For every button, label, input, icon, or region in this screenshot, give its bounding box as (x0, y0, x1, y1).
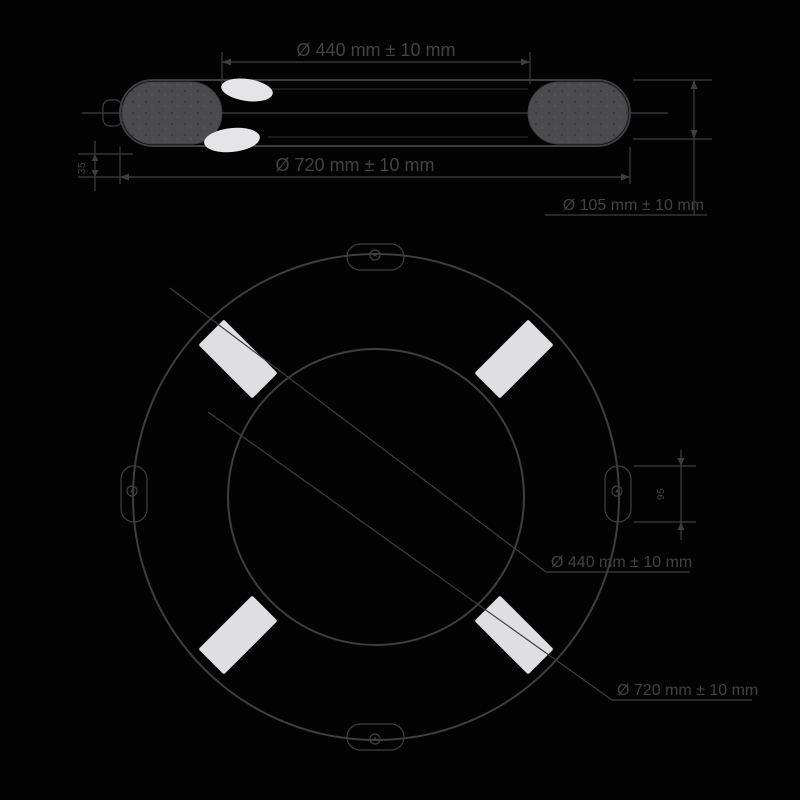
arrowhead (621, 174, 630, 181)
reflective-tape-se (474, 595, 553, 674)
leader-line (170, 288, 546, 572)
dimension-ear-width: 95 (634, 450, 696, 540)
dimension-label: Ø 105 mm ± 10 mm (563, 197, 704, 214)
dimension-side-outer-diameter: Ø 720 mm ± 10 mm (120, 147, 630, 184)
ear-hole-center (374, 254, 377, 257)
ear-hole-center (131, 490, 134, 493)
dimension-label: Ø 440 mm ± 10 mm (551, 554, 692, 571)
ear-hole-center (374, 738, 377, 741)
reflective-tape-nw (198, 319, 277, 398)
dimension-band-width: 35 (77, 141, 133, 191)
arrowhead (678, 458, 685, 466)
dimension-side-inner-diameter: Ø 440 mm ± 10 mm (222, 40, 530, 84)
lifebuoy-technical-drawing: Ø 440 mm ± 10 mm Ø 720 mm ± 10 mm Ø 105 … (0, 0, 800, 800)
dimension-label: Ø 720 mm ± 10 mm (276, 155, 435, 175)
ear-tab (347, 244, 404, 270)
ear-south (347, 724, 404, 750)
drawing-page: Ø 440 mm ± 10 mm Ø 720 mm ± 10 mm Ø 105 … (0, 0, 800, 800)
inner-circle (228, 349, 524, 645)
right-end-cap (528, 82, 628, 144)
ear-hole-center (616, 490, 619, 493)
top-view: Ø 440 mm ± 10 mm Ø 720 mm ± 10 mm 95 (121, 244, 758, 750)
reflective-tape-ne (474, 319, 553, 398)
dimension-label: 95 (656, 488, 667, 500)
arrowhead (678, 522, 685, 530)
arrowhead (691, 80, 698, 89)
dimension-label: Ø 720 mm ± 10 mm (617, 682, 758, 699)
left-end-cap (122, 82, 222, 144)
reflective-tape-sw (198, 595, 277, 674)
ear-north (347, 244, 404, 270)
dimension-label: 35 (77, 162, 88, 174)
dimension-label: Ø 440 mm ± 10 mm (297, 40, 456, 60)
arrowhead (92, 170, 99, 177)
ear-tab (347, 724, 404, 750)
arrowhead (222, 59, 231, 66)
side-view: Ø 440 mm ± 10 mm Ø 720 mm ± 10 mm Ø 105 … (77, 40, 712, 215)
arrowhead (521, 59, 530, 66)
arrowhead (691, 130, 698, 139)
arrowhead (92, 154, 99, 161)
outer-circle (133, 254, 619, 740)
leader-top-inner-diameter: Ø 440 mm ± 10 mm (170, 288, 692, 572)
